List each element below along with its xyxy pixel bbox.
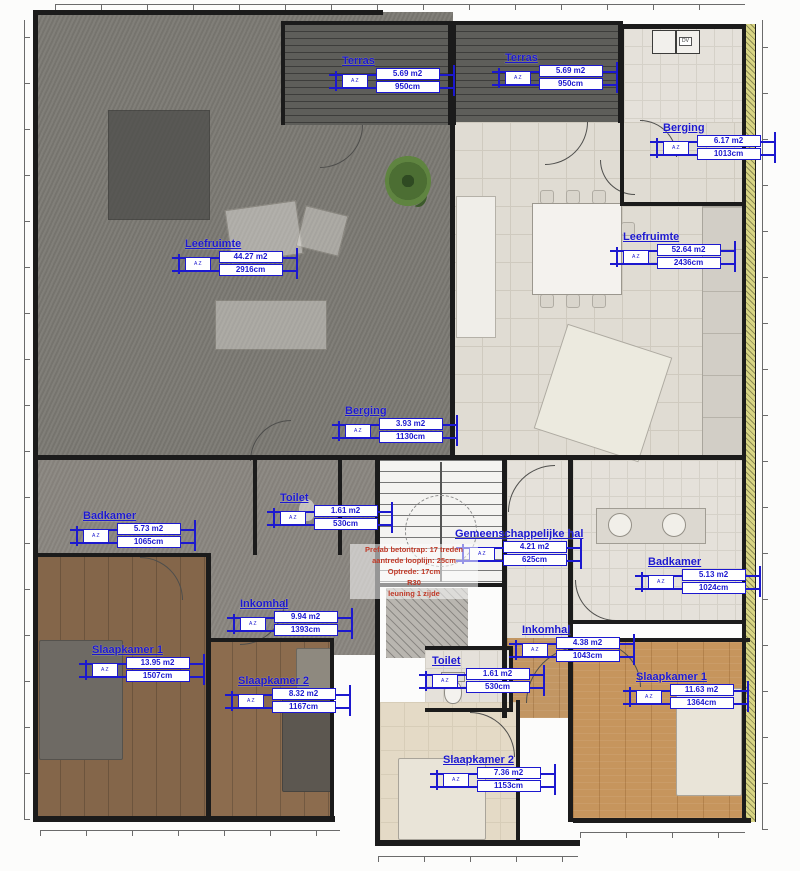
- zone-stamp-inkomhal-left: Inkomhal A Z 9.94 m2 1393cm: [240, 598, 338, 636]
- room-dim: 530cm: [466, 681, 530, 693]
- room-dim: 1013cm: [697, 148, 761, 160]
- room-dim: 1130cm: [379, 431, 443, 443]
- dimension-line-bottom: [40, 830, 340, 836]
- room-area: 44.27 m2: [219, 251, 283, 263]
- room-label: Slaapkamer 1: [92, 644, 190, 656]
- plant-icon: [385, 155, 431, 207]
- wall: [33, 553, 211, 557]
- room-label: Leefruimte: [185, 238, 283, 250]
- zone-code: A Z: [623, 250, 649, 264]
- room-area: 4.21 m2: [503, 541, 567, 553]
- dimension-line-bottom: [580, 832, 745, 838]
- zone-stamp-berging-mid: Berging A Z 3.93 m2 1130cm: [345, 405, 443, 443]
- room-label: Berging: [663, 122, 761, 134]
- wall: [206, 638, 334, 642]
- sink-icon: [662, 513, 686, 537]
- zone-stamp-slaapkamer1-right: Slaapkamer 1 A Z 11.63 m2 1364cm: [636, 671, 734, 709]
- dimension-line-left: [24, 20, 30, 820]
- chair-icon: [592, 294, 606, 308]
- washer-icon: [652, 30, 676, 54]
- room-dim: 950cm: [376, 81, 440, 93]
- stair-annotation: Prefab betontrap: 17 treden aantrede loo…: [350, 544, 478, 599]
- zone-code: A Z: [342, 74, 368, 88]
- room-dim: 1153cm: [477, 780, 541, 792]
- zone-stamp-leefruimte-left: Leefruimte A Z 44.27 m2 2916cm: [185, 238, 283, 276]
- stair-note-line: Prefab betontrap: 17 treden: [350, 544, 478, 555]
- room-label: Badkamer: [648, 556, 746, 568]
- wall: [573, 818, 751, 823]
- zone-code: A Z: [240, 617, 266, 631]
- wall: [620, 202, 746, 206]
- zone-code: A Z: [663, 141, 689, 155]
- room-area: 3.93 m2: [379, 418, 443, 430]
- room-area: 52.64 m2: [657, 244, 721, 256]
- zone-code: A Z: [443, 773, 469, 787]
- cabinet-strip: [456, 196, 496, 338]
- chair-icon: [540, 294, 554, 308]
- sofa-left-2: [215, 300, 327, 350]
- wall: [375, 840, 580, 846]
- zone-stamp-leefruimte-right: Leefruimte A Z 52.64 m2 2436cm: [623, 231, 721, 269]
- wall: [330, 640, 334, 818]
- wall: [425, 708, 513, 712]
- room-area: 6.17 m2: [697, 135, 761, 147]
- floor-plan: DV Terras A Z 5.69 m2 950cm Terras A Z 5…: [0, 0, 800, 871]
- appliance-label: DV: [679, 37, 692, 46]
- zone-code: A Z: [345, 424, 371, 438]
- room-label: Gemeenschappelijke hal: [455, 528, 583, 540]
- wall: [620, 28, 624, 206]
- zone-stamp-terras-right: Terras A Z 5.69 m2 950cm: [505, 52, 603, 90]
- dimension-line-bottom: [378, 856, 578, 862]
- room-dim: 625cm: [503, 554, 567, 566]
- zone-stamp-slaapkamer1-left: Slaapkamer 1 A Z 13.95 m2 1507cm: [92, 644, 190, 682]
- room-area: 1.61 m2: [314, 505, 378, 517]
- room-label: Berging: [345, 405, 443, 417]
- room-label: Slaapkamer 2: [443, 754, 541, 766]
- zone-code: A Z: [92, 663, 118, 677]
- zone-stamp-slaapkamer2-left: Slaapkamer 2 A Z 8.32 m2 1167cm: [238, 675, 336, 713]
- dining-table-left: [108, 110, 210, 220]
- chair-icon: [592, 190, 606, 204]
- wall: [281, 21, 285, 125]
- room-dim: 2916cm: [219, 264, 283, 276]
- stair-note-line: aantrede looplijn: 25cm: [350, 555, 478, 566]
- room-dim: 1065cm: [117, 536, 181, 548]
- zone-code: A Z: [83, 529, 109, 543]
- room-label: Slaapkamer 2: [238, 675, 336, 687]
- chair-icon: [540, 190, 554, 204]
- room-label: Badkamer: [83, 510, 181, 522]
- room-label: Toilet: [280, 492, 378, 504]
- room-area: 5.69 m2: [376, 68, 440, 80]
- room-dim: 950cm: [539, 78, 603, 90]
- wall: [33, 10, 38, 820]
- room-dim: 1043cm: [556, 650, 620, 662]
- sink-icon: [608, 513, 632, 537]
- room-label: Inkomhal: [522, 624, 620, 636]
- zone-stamp-terras-left: Terras A Z 5.69 m2 950cm: [342, 55, 440, 93]
- zone-code: A Z: [238, 694, 264, 708]
- room-area: 5.73 m2: [117, 523, 181, 535]
- wall: [253, 455, 257, 555]
- wall: [33, 455, 746, 460]
- zone-code: A Z: [648, 575, 674, 589]
- zone-code: A Z: [636, 690, 662, 704]
- zone-stamp-slaapkamer2-bottom: Slaapkamer 2 A Z 7.36 m2 1153cm: [443, 754, 541, 792]
- stair-note-line: Optrede: 17cm: [350, 566, 478, 577]
- room-area: 9.94 m2: [274, 611, 338, 623]
- wall: [33, 816, 335, 822]
- room-dim: 1167cm: [272, 701, 336, 713]
- room-dim: 530cm: [314, 518, 378, 530]
- wall: [450, 122, 455, 460]
- zone-stamp-berging-topright: Berging A Z 6.17 m2 1013cm: [663, 122, 761, 160]
- chair-icon: [566, 294, 580, 308]
- room-area: 5.69 m2: [539, 65, 603, 77]
- zone-code: A Z: [505, 71, 531, 85]
- zone-stamp-badkamer-right: Badkamer A Z 5.13 m2 1024cm: [648, 556, 746, 594]
- room-dim: 2436cm: [657, 257, 721, 269]
- zone-code: A Z: [185, 257, 211, 271]
- zone-stamp-toilet-left: Toilet A Z 1.61 m2 530cm: [280, 492, 378, 530]
- wall: [206, 553, 211, 820]
- room-area: 11.63 m2: [670, 684, 734, 696]
- room-label: Slaapkamer 1: [636, 671, 734, 683]
- zone-code: A Z: [432, 674, 458, 688]
- room-label: Inkomhal: [240, 598, 338, 610]
- zone-stamp-toilet-bottom: Toilet A Z 1.61 m2 530cm: [432, 655, 530, 693]
- wall: [425, 646, 513, 650]
- room-label: Toilet: [432, 655, 530, 667]
- room-dim: 1393cm: [274, 624, 338, 636]
- room-label: Leefruimte: [623, 231, 721, 243]
- stair-note-line: leuning 1 zijde: [350, 588, 478, 599]
- zone-stamp-inkomhal-right: Inkomhal A Z 4.38 m2 1043cm: [522, 624, 620, 662]
- zone-stamp-badkamer-left: Badkamer A Z 5.73 m2 1065cm: [83, 510, 181, 548]
- stair-note-line: R30: [350, 577, 478, 588]
- room-area: 1.61 m2: [466, 668, 530, 680]
- wall: [620, 24, 746, 29]
- dining-table-right: [532, 203, 622, 295]
- room-area: 13.95 m2: [126, 657, 190, 669]
- room-area: 5.13 m2: [682, 569, 746, 581]
- chair-icon: [566, 190, 580, 204]
- room-area: 8.32 m2: [272, 688, 336, 700]
- room-area: 7.36 m2: [477, 767, 541, 779]
- room-area: 4.38 m2: [556, 637, 620, 649]
- room-label: Terras: [342, 55, 440, 67]
- room-dim: 1024cm: [682, 582, 746, 594]
- room-dim: 1364cm: [670, 697, 734, 709]
- room-label: Terras: [505, 52, 603, 64]
- wall: [33, 10, 383, 15]
- room-dim: 1507cm: [126, 670, 190, 682]
- zone-code: A Z: [280, 511, 306, 525]
